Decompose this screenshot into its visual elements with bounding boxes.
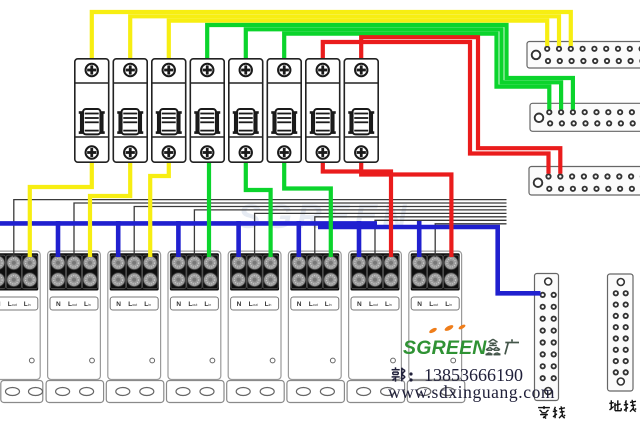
svg-text:in: in (449, 303, 452, 307)
svg-text:out: out (253, 303, 258, 307)
svg-text:in: in (88, 303, 91, 307)
svg-text:in: in (269, 303, 272, 307)
svg-text:out: out (433, 303, 438, 307)
svg-text:out: out (373, 303, 378, 307)
svg-text:in: in (28, 303, 31, 307)
svg-text:N: N (237, 301, 242, 308)
svg-text:N: N (357, 301, 362, 308)
svg-text:in: in (208, 303, 211, 307)
svg-text:N: N (176, 301, 181, 308)
svg-text:in: in (148, 303, 151, 307)
svg-text:out: out (12, 303, 17, 307)
svg-text:in: in (389, 303, 392, 307)
svg-text:out: out (132, 303, 137, 307)
svg-text:out: out (72, 303, 77, 307)
svg-text:N: N (417, 301, 422, 308)
svg-text:out: out (192, 303, 197, 307)
svg-text:N: N (56, 301, 61, 308)
svg-text:N: N (116, 301, 121, 308)
svg-text:in: in (329, 303, 332, 307)
svg-text:out: out (313, 303, 318, 307)
svg-text:N: N (297, 301, 302, 308)
svg-text:SGREEN: SGREEN (403, 337, 487, 359)
svg-text:www.sdxinguang.com: www.sdxinguang.com (388, 382, 555, 402)
